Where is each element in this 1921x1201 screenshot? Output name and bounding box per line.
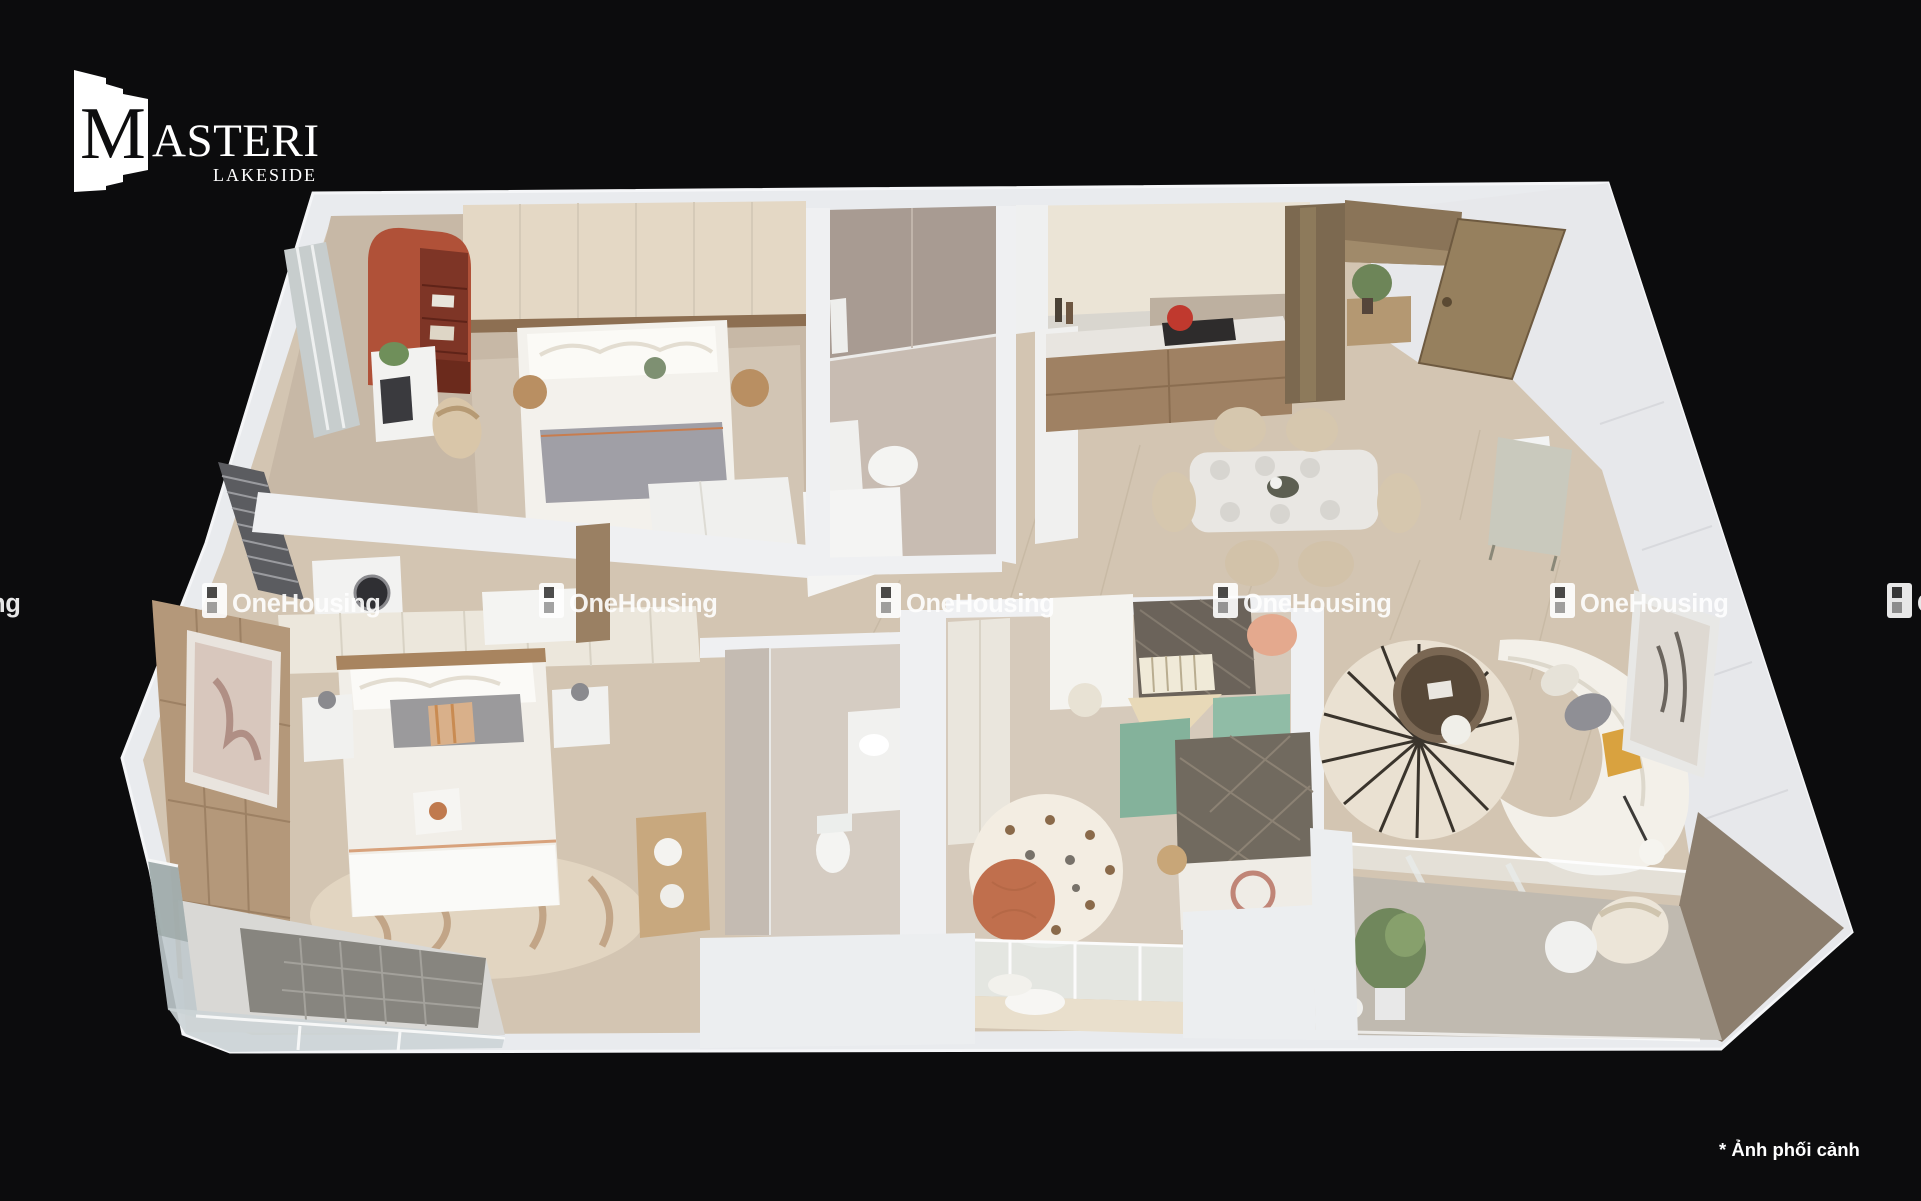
svg-text:OneHousing: OneHousing [0, 590, 21, 618]
svg-text:OneHousing: OneHousing [1243, 590, 1392, 618]
svg-text:ASTERI: ASTERI [152, 115, 320, 167]
svg-text:OneHousing: OneHousing [232, 590, 381, 618]
svg-text:OneHousing: OneHousing [906, 590, 1055, 618]
svg-text:OneHousing: OneHousing [569, 590, 718, 618]
svg-text:LAKESIDE: LAKESIDE [213, 165, 317, 185]
svg-text:OneHousing: OneHousing [1917, 590, 1921, 618]
svg-text:M: M [80, 93, 146, 175]
svg-text:* Ảnh phối cảnh: * Ảnh phối cảnh [1719, 1139, 1860, 1160]
svg-text:OneHousing: OneHousing [1580, 590, 1729, 618]
